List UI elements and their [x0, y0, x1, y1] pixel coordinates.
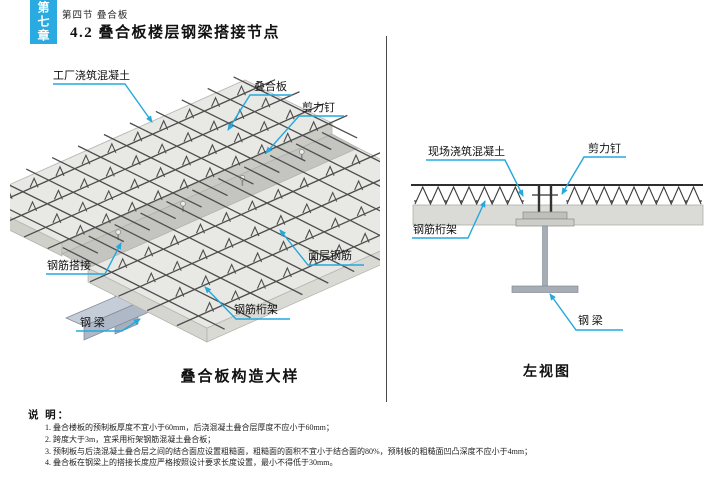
figure-divider — [386, 36, 387, 402]
label-site-concrete: 现场浇筑混凝土 — [428, 146, 505, 159]
notes-section: 说 明： 1. 叠合楼板的预制板厚度不宜小于60mm，后浇混凝土叠合层厚度不应小… — [28, 407, 708, 469]
label-shear-stud-left: 剪力钉 — [302, 102, 335, 115]
page: { "page": { "chapter_tab": "第七章", "secti… — [0, 0, 722, 500]
label-rebar-truss-right: 钢筋桁架 — [413, 224, 457, 237]
label-rebar-truss-left: 钢筋桁架 — [234, 304, 278, 317]
note-item: 3. 预制板与后浇混凝土叠合层之间的结合面应设置粗糙面，粗糙面的面积不宜小于结合… — [45, 446, 708, 458]
section-label: 第四节 叠合板 — [62, 7, 128, 21]
chapter-tab: 第七章 — [30, 0, 57, 44]
note-item: 1. 叠合楼板的预制板厚度不宜小于60mm，后浇混凝土叠合层厚度不应小于60mm… — [45, 422, 708, 434]
left-figure-caption: 叠合板构造大样 — [160, 365, 320, 386]
page-title: 4.2 叠合板楼层钢梁搭接节点 — [70, 21, 280, 42]
right-figure-caption: 左视图 — [497, 361, 597, 381]
label-shear-stud-right: 剪力钉 — [588, 143, 621, 156]
label-composite-slab: 叠合板 — [254, 81, 287, 94]
label-surface-rebar: 面层钢筋 — [308, 250, 352, 263]
right-figure-drawing — [395, 128, 722, 370]
label-steel-beam-left: 钢 梁 — [80, 317, 105, 330]
label-factory-concrete: 工厂浇筑混凝土 — [53, 70, 130, 83]
label-steel-beam-right: 钢 梁 — [578, 315, 603, 328]
notes-heading: 说 明： — [28, 407, 708, 422]
note-item: 2. 跨度大于3m，宜采用桁架钢筋混凝土叠合板； — [45, 434, 708, 446]
label-rebar-lap: 钢筋搭接 — [47, 260, 91, 273]
note-item: 4. 叠合板在钢梁上的搭接长度应严格按照设计要求长度设置，最小不得低于30mm。 — [45, 457, 708, 469]
